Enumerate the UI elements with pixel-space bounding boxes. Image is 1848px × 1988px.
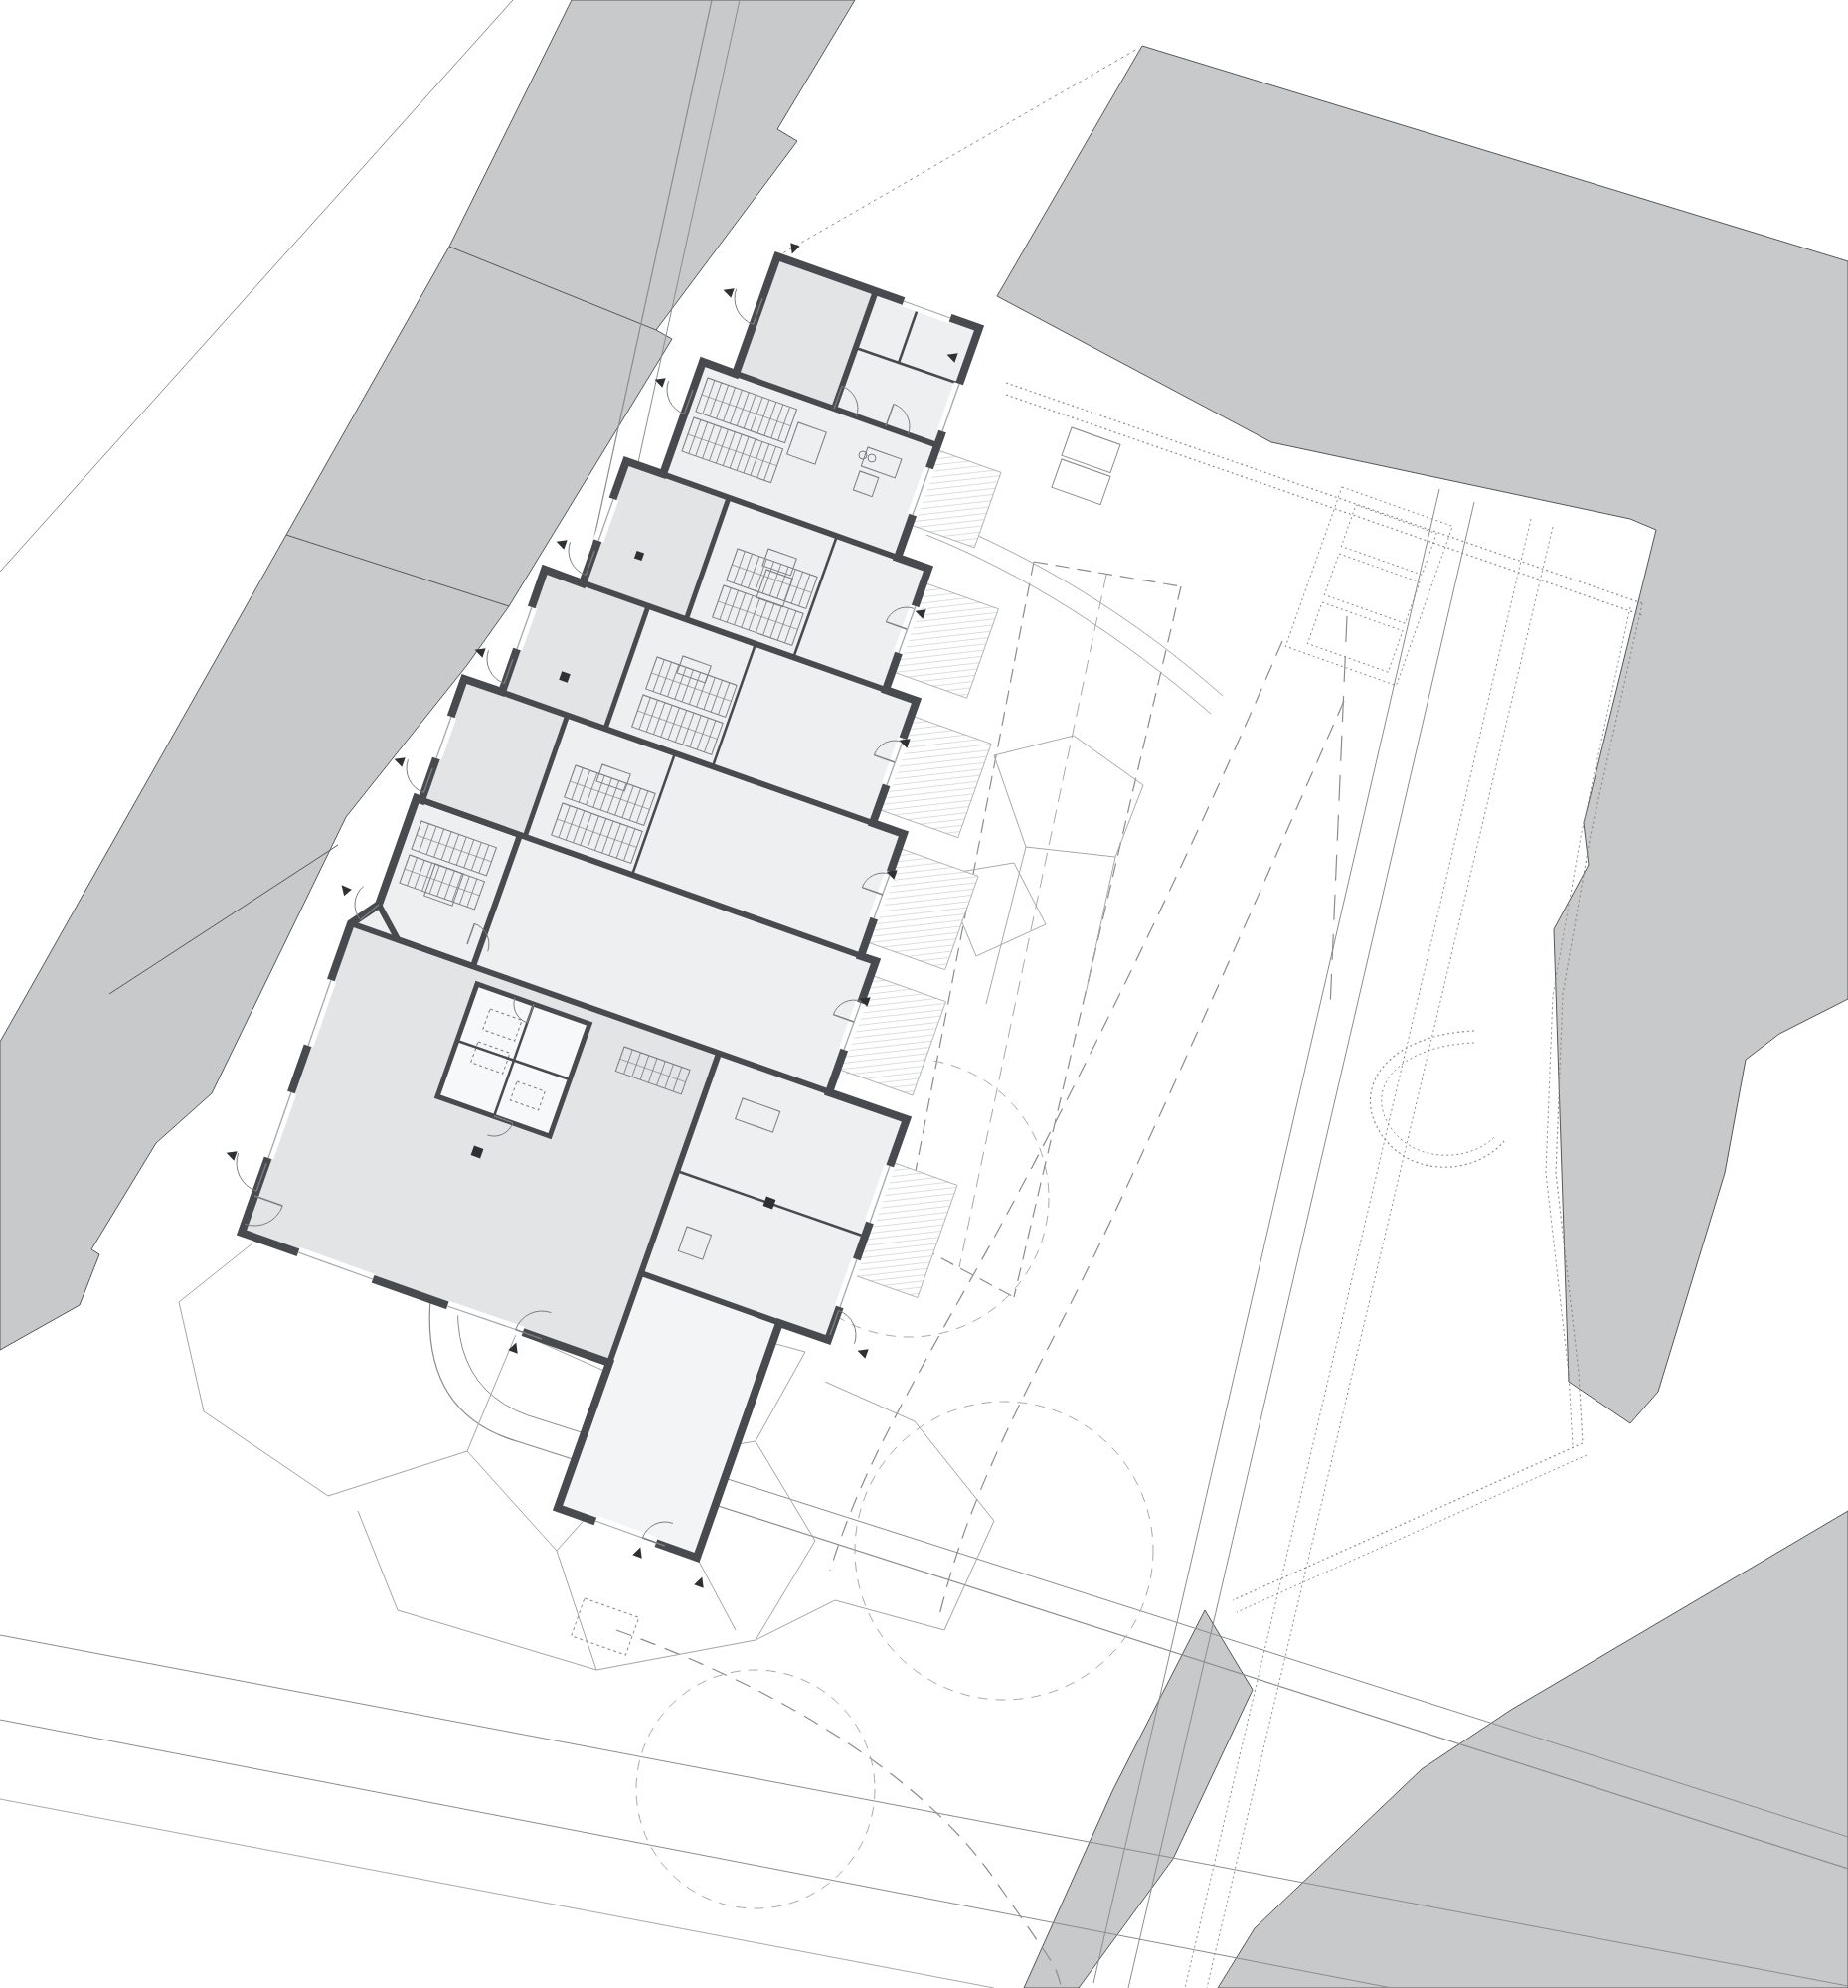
bed-line-2 bbox=[1086, 857, 1115, 994]
paving-15 bbox=[596, 1640, 756, 1670]
planter-2 bbox=[1324, 554, 1420, 623]
alley-edge-2 bbox=[1128, 502, 1474, 1988]
door-entry-r4-swing bbox=[407, 759, 423, 792]
entry-arrow-7 bbox=[225, 1148, 238, 1161]
paving-1 bbox=[179, 1242, 253, 1302]
paving-17 bbox=[358, 1511, 398, 1610]
site-plan-svg bbox=[0, 0, 1848, 1988]
paving-24 bbox=[697, 1558, 736, 1630]
paving-9 bbox=[467, 1451, 557, 1551]
planter-frame bbox=[1285, 487, 1452, 686]
street-south-3 bbox=[0, 1799, 994, 1988]
dashed-walk-3 bbox=[616, 1630, 1062, 1988]
entry-arrow-3 bbox=[555, 537, 568, 550]
context-block-southeast bbox=[1218, 1511, 1848, 1988]
entry-arrow-9 bbox=[632, 1546, 645, 1559]
paving-22 bbox=[835, 1600, 944, 1630]
paving-20 bbox=[915, 1421, 994, 1521]
paving-dashed-plinth bbox=[572, 1598, 639, 1655]
door-wing-east-swing bbox=[839, 1311, 856, 1344]
entry-arrow-10 bbox=[694, 1575, 707, 1588]
door-entry-top-swing bbox=[735, 289, 754, 325]
paving-19 bbox=[825, 1382, 915, 1421]
court-structure-1 bbox=[1062, 427, 1120, 473]
fence-dotted-south-a bbox=[1233, 1443, 1583, 1600]
plan-canvas bbox=[0, 0, 1848, 1988]
boundary-longdash bbox=[1330, 616, 1347, 1009]
court-structure-2 bbox=[1052, 459, 1110, 505]
garage-dash-mid bbox=[959, 575, 1106, 1267]
tree-canopy-3 bbox=[636, 1670, 875, 1908]
paving-2 bbox=[179, 1302, 204, 1411]
context-block-northeast bbox=[997, 46, 1848, 1423]
tree-canopy-2 bbox=[855, 1402, 1153, 1700]
paving-21 bbox=[944, 1521, 994, 1630]
garage-dash-east bbox=[1014, 586, 1181, 1297]
paving-4 bbox=[328, 1451, 467, 1496]
entry-arrow-6 bbox=[338, 882, 352, 896]
alley-edge-1 bbox=[1093, 489, 1439, 1983]
garage-dash-north bbox=[1034, 562, 1181, 586]
planter-3 bbox=[1307, 602, 1403, 672]
paving-3 bbox=[204, 1411, 328, 1496]
fence-dotted-south-b bbox=[1237, 1455, 1587, 1612]
turnaround-dotted-b bbox=[1382, 1043, 1496, 1155]
door-entry-r1-swing bbox=[667, 381, 684, 414]
paving-18 bbox=[398, 1610, 596, 1670]
turnaround-dotted-a bbox=[1370, 1031, 1504, 1167]
dashed-walk-2 bbox=[939, 701, 1344, 1615]
entry-arrow-1 bbox=[722, 285, 735, 298]
door-entry-r3-swing bbox=[487, 650, 504, 683]
entry-arrow-11 bbox=[856, 1346, 869, 1359]
paving-14 bbox=[557, 1551, 596, 1670]
door-hall-west-a-swing bbox=[237, 1153, 256, 1191]
bed-line-1 bbox=[986, 847, 1026, 1004]
